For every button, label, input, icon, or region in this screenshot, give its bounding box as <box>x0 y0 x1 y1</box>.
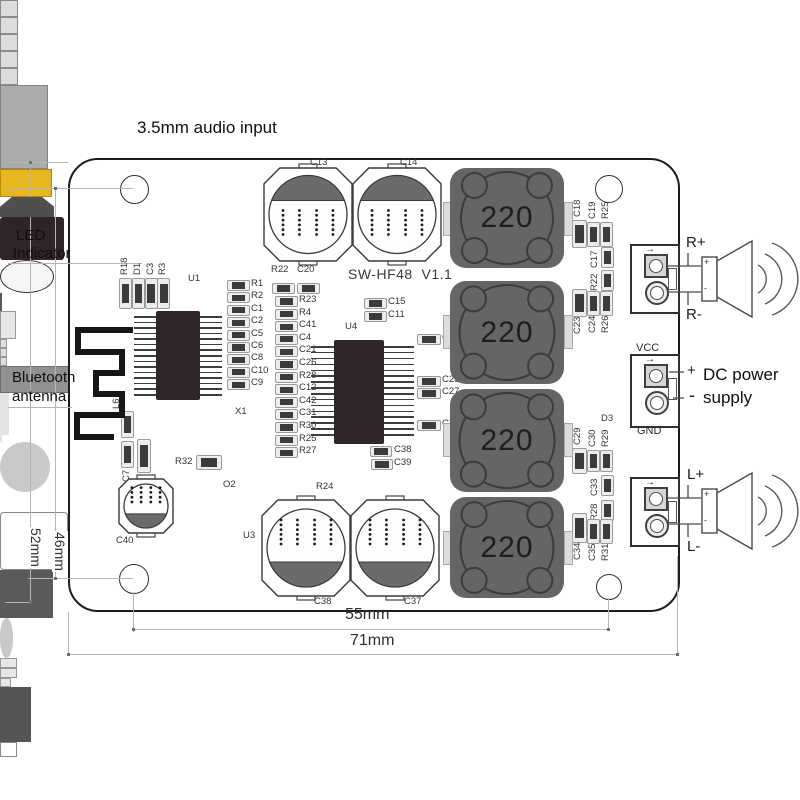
left-speaker-minus-label: L- <box>687 538 700 555</box>
smd-body <box>232 382 246 388</box>
dc-power-label-2: supply <box>703 388 752 408</box>
sound-wave-icon <box>758 497 766 525</box>
silk-label: C1 <box>251 304 263 314</box>
dim-tick <box>67 653 70 656</box>
led-smd-label: C3 <box>146 263 156 275</box>
smd-body <box>280 437 294 443</box>
audio-input-label: 3.5mm audio input <box>137 118 277 138</box>
transistor-lead <box>0 339 7 348</box>
silk-label: C9 <box>251 378 263 388</box>
ic-pin <box>134 355 156 357</box>
ic-pin <box>200 366 222 368</box>
silk-label: R22 <box>271 265 288 275</box>
main-ic-ref-label: U4 <box>345 322 357 332</box>
electrolytic-capacitor <box>262 495 350 601</box>
main-ic-body <box>334 340 384 444</box>
ic-pin <box>134 344 156 346</box>
ic-pin <box>134 372 156 374</box>
ic-pin <box>384 393 414 395</box>
ic-pin <box>311 358 334 360</box>
smd-component <box>227 330 250 341</box>
smd-body <box>603 227 610 243</box>
smd-body <box>590 296 597 312</box>
ext-line-board-bottom <box>5 602 31 603</box>
ic-pin <box>200 322 222 324</box>
inductor-value: 220 <box>450 281 564 384</box>
regulator-pin <box>0 658 17 668</box>
smd-body <box>232 344 246 350</box>
smd-component <box>601 500 614 521</box>
smd-component <box>275 334 298 345</box>
ic-pin <box>311 416 334 418</box>
inductor: 220 <box>450 389 564 492</box>
silk-label: C38 <box>394 445 411 455</box>
led-indicator-label-2: Indicator <box>13 245 71 262</box>
smd-component <box>600 450 613 472</box>
diode-body <box>0 687 31 742</box>
smd-component <box>572 448 587 474</box>
smd-body <box>140 445 148 467</box>
smd-body <box>232 369 246 375</box>
smd-component <box>417 388 441 399</box>
regulator-pin <box>0 678 11 687</box>
audio-jack-body <box>0 85 48 169</box>
led-smd <box>132 278 145 309</box>
c40-label: C40 <box>116 536 133 546</box>
left-speaker-plus-label: L+ <box>687 466 704 483</box>
smd-component <box>572 220 587 248</box>
terminal-opening <box>649 369 663 383</box>
smd-component <box>227 292 250 303</box>
smd-body <box>604 479 611 492</box>
ic-pin <box>134 377 156 379</box>
silk-label: C10 <box>251 366 268 376</box>
inductor-tab <box>564 315 573 349</box>
smd-body <box>604 251 611 264</box>
power-resistor-cap <box>0 393 9 414</box>
smd-component <box>275 346 298 357</box>
smd-component <box>600 519 613 544</box>
smd-body <box>277 285 291 291</box>
inductor: 220 <box>450 281 564 384</box>
c13-label: C13 <box>310 158 327 168</box>
smd-component <box>587 291 600 316</box>
smd-body <box>369 300 383 306</box>
dc-power-label-1: DC power <box>703 365 779 385</box>
mounting-hole-bottom-right <box>596 574 622 600</box>
dim-71mm-label: 71mm <box>350 632 394 650</box>
inductor-value: 220 <box>450 389 564 492</box>
smd-body <box>590 454 597 468</box>
ic-pin <box>134 333 156 335</box>
dc-plus-sign: + <box>687 362 696 379</box>
smd-body <box>280 349 294 355</box>
silk-label: C24 <box>588 316 598 333</box>
inductor-tab <box>564 202 573 236</box>
led-smd-label: R3 <box>158 263 168 275</box>
smd-body <box>422 378 437 384</box>
ic-pin <box>311 405 334 407</box>
ic-pin <box>134 322 156 324</box>
transistor-body <box>0 311 16 339</box>
silk-label: R4 <box>299 308 311 318</box>
smd-component <box>601 247 614 268</box>
wire-entry-arrow-icon: → <box>645 355 655 365</box>
dim-line-55mm <box>133 629 608 630</box>
smd-component <box>275 447 298 458</box>
smd-body <box>422 390 437 396</box>
bluetooth-label-2: antenna <box>12 388 66 405</box>
silk-label: C5 <box>251 329 263 339</box>
power-resistor-cap <box>0 414 9 435</box>
smd-body <box>232 282 246 288</box>
smd-component <box>275 321 298 332</box>
smd-component <box>275 397 298 408</box>
silk-label: C35 <box>588 544 598 561</box>
smd-component <box>572 289 587 317</box>
smd-component <box>364 311 387 322</box>
toroid-ring-inner <box>0 492 20 512</box>
led-smd-label: D1 <box>133 263 143 275</box>
bluetooth-ic-body <box>156 311 200 400</box>
electrolytic-capacitor <box>264 163 352 266</box>
smd-body <box>374 448 387 454</box>
jack-pad <box>0 0 18 17</box>
terminal-screw-square <box>644 364 668 388</box>
dim-46mm-label: 46mm <box>52 531 68 572</box>
smd-component <box>600 222 613 247</box>
terminal-opening <box>650 396 664 410</box>
silk-label: R31 <box>601 544 611 561</box>
led-smd <box>119 278 132 309</box>
smd-component <box>275 359 298 370</box>
ic-pin <box>200 377 222 379</box>
sound-wave-icon <box>772 243 798 315</box>
ic-pin <box>200 333 222 335</box>
silk-label: C19 <box>588 202 598 219</box>
ic-pin <box>200 388 222 390</box>
smd-component <box>297 283 320 294</box>
ic-pin <box>134 383 156 385</box>
ic-pin <box>384 411 414 413</box>
speaker-polarity-mark: + <box>704 258 709 267</box>
led-indicator-label-1: LED <box>16 227 45 244</box>
electrolytic-capacitor <box>353 163 441 266</box>
inductor-value: 220 <box>450 497 564 598</box>
smd-body <box>280 361 294 367</box>
smd-component <box>227 280 250 291</box>
smd-component <box>227 317 250 328</box>
ext-71mm-right <box>677 556 678 656</box>
smd-component <box>196 455 222 470</box>
smd-component <box>275 372 298 383</box>
antenna-leader-line <box>8 407 72 408</box>
smd-component <box>275 422 298 433</box>
smd-body <box>603 454 610 468</box>
ic-pin <box>384 387 414 389</box>
wire-entry-arrow-icon: → <box>645 245 655 255</box>
smd-body <box>232 307 246 313</box>
diode-pad <box>0 742 17 757</box>
jack-pad <box>0 34 18 51</box>
smd-body <box>375 461 388 467</box>
transistor-lead <box>0 348 7 357</box>
inductor-tab <box>564 531 573 565</box>
ic-pin <box>311 346 334 348</box>
terminal-screw-round <box>645 281 669 305</box>
ext-line-bottom-hole <box>28 578 133 579</box>
silk-label: C18 <box>573 200 583 217</box>
dc-minus-sign: - <box>689 385 695 406</box>
silk-label: C29 <box>573 428 583 445</box>
silk-label: R1 <box>251 279 263 289</box>
r24-label: R24 <box>316 482 333 492</box>
sound-wave-icon <box>765 254 782 304</box>
speaker-polarity-mark: - <box>704 516 707 525</box>
smd-body <box>603 524 610 540</box>
right-speaker-plus-label: R+ <box>686 234 706 251</box>
ext-line-board-top <box>8 162 68 163</box>
ic-pin <box>200 372 222 374</box>
ic-pin <box>311 381 334 383</box>
smd-component <box>121 441 134 468</box>
smd-component <box>227 354 250 365</box>
smd-body <box>422 336 437 342</box>
smd-component <box>272 283 295 294</box>
ic-pin <box>200 349 222 351</box>
ic-pin <box>311 434 334 436</box>
dim-tick <box>29 161 32 164</box>
smd-component <box>417 420 441 431</box>
terminal-opening <box>650 286 664 300</box>
r32-label: R32 <box>175 457 192 467</box>
silk-label: C34 <box>573 543 583 560</box>
smd-body <box>124 446 131 463</box>
speaker-polarity-mark: + <box>704 490 709 499</box>
bluetooth-label-1: Bluetooth <box>12 369 75 386</box>
ic-pin <box>134 316 156 318</box>
smd-component <box>600 291 613 316</box>
inductor-tab <box>564 423 573 457</box>
pcb-product-diagram: 3.5mm audio input LED Indicator Bluetoot… <box>0 0 800 800</box>
ic-pin <box>384 405 414 407</box>
smd-component <box>227 342 250 353</box>
smd-component <box>275 296 298 307</box>
silk-label: C41 <box>299 320 316 330</box>
audio-jack-cap <box>0 197 54 217</box>
crystal-can <box>0 260 54 293</box>
ic-pin <box>200 383 222 385</box>
ic-pin <box>200 338 222 340</box>
l6-label: L6 <box>112 398 122 409</box>
smd-body <box>369 313 383 319</box>
power-resistor-dot <box>0 440 2 442</box>
ic-pin <box>311 393 334 395</box>
smd-body <box>575 294 584 312</box>
ic-pin <box>134 361 156 363</box>
smd-component <box>227 379 250 390</box>
electrolytic-capacitor <box>351 495 439 601</box>
jack-pad <box>0 68 18 85</box>
smd-component <box>417 334 441 345</box>
mounting-hole-bottom-left <box>119 564 149 594</box>
inductor-value: 220 <box>450 168 564 268</box>
smd-component <box>227 367 250 378</box>
smd-body <box>280 311 294 317</box>
terminal-opening <box>649 492 663 506</box>
smd-body <box>124 416 131 433</box>
sound-wave-icon <box>758 265 766 293</box>
toroid-ring-outer <box>0 442 50 492</box>
ext-71mm-left <box>68 612 69 656</box>
dim-tick <box>132 628 135 631</box>
silk-label: C39 <box>394 458 411 468</box>
smd-body <box>201 458 217 467</box>
ic-pin <box>134 338 156 340</box>
ic-pin <box>384 399 414 401</box>
smd-body <box>232 357 246 363</box>
d3-label: D3 <box>601 414 613 424</box>
dim-tick <box>29 601 32 604</box>
smd-component <box>227 305 250 316</box>
speaker-polarity-mark: - <box>704 284 707 293</box>
ext-55mm-left <box>133 592 134 632</box>
regulator-pin <box>0 668 17 678</box>
terminal-notch <box>668 501 677 523</box>
sound-wave-icon <box>772 475 798 547</box>
ic-pin <box>384 434 414 436</box>
ic-pin <box>200 355 222 357</box>
terminal-screw-square <box>644 254 668 278</box>
silk-label: R22 <box>590 274 600 291</box>
right-speaker-minus-label: R- <box>686 306 702 323</box>
speaker-horn-icon <box>717 473 752 549</box>
smd-component <box>364 298 387 309</box>
silk-label: C20 <box>297 265 314 275</box>
ic-pin <box>311 399 334 401</box>
smd-body <box>135 284 142 304</box>
regulator-tab <box>0 618 13 658</box>
ic-pin <box>384 422 414 424</box>
ic-pin <box>384 416 414 418</box>
silk-label: R2 <box>251 291 263 301</box>
led-smd-label: R18 <box>120 258 130 275</box>
ic-pin <box>311 352 334 354</box>
terminal-opening <box>649 259 663 273</box>
smd-body <box>122 284 129 304</box>
smd-body <box>302 285 316 291</box>
smd-body <box>280 412 294 418</box>
smd-body <box>590 524 597 540</box>
terminal-opening <box>650 519 664 533</box>
mounting-hole-top-left <box>120 175 149 204</box>
u3-label: U3 <box>243 531 255 541</box>
dim-tick <box>54 187 57 190</box>
smd-body <box>232 332 246 338</box>
smd-body <box>280 387 294 393</box>
smd-component <box>370 446 392 457</box>
electrolytic-capacitor <box>119 474 173 538</box>
ic-pin <box>200 361 222 363</box>
smd-body <box>590 227 597 243</box>
crystal-ref-label: X1 <box>235 407 247 417</box>
smd-body <box>280 336 294 342</box>
ic-pin <box>134 327 156 329</box>
smd-body <box>280 424 294 430</box>
audio-jack-ring <box>0 169 52 197</box>
jack-pad <box>0 17 18 34</box>
ic-pin <box>384 428 414 430</box>
smd-body <box>147 284 154 304</box>
speaker-horn-icon <box>717 241 752 317</box>
dim-55mm-label: 55mm <box>345 606 389 624</box>
wire-entry-arrow-icon: → <box>645 478 655 488</box>
smd-body <box>575 453 584 469</box>
ic-pin <box>311 364 334 366</box>
silk-label: R27 <box>299 446 316 456</box>
terminal-screw-square <box>644 487 668 511</box>
smd-body <box>604 274 611 287</box>
ext-55mm-right <box>608 598 609 630</box>
smd-body <box>575 225 584 243</box>
ic-pin <box>134 366 156 368</box>
silk-label: C2 <box>251 316 263 326</box>
ic-pin <box>200 316 222 318</box>
silk-label: R25 <box>601 202 611 219</box>
ic-pin <box>384 346 414 348</box>
smd-component <box>275 309 298 320</box>
c14-label: C14 <box>400 158 417 168</box>
smd-body <box>160 284 167 304</box>
terminal-screw-round <box>645 391 669 415</box>
smd-component <box>587 222 600 247</box>
ic-pin <box>384 364 414 366</box>
smd-body <box>603 296 610 312</box>
ic-pin <box>134 349 156 351</box>
ic-pin <box>311 422 334 424</box>
dim-tick <box>607 628 610 631</box>
ic-pin <box>311 375 334 377</box>
ic-pin <box>384 370 414 372</box>
silk-label: R26 <box>601 316 611 333</box>
c38-label: C38 <box>314 597 331 607</box>
smd-component <box>137 439 151 473</box>
ic-pin <box>200 327 222 329</box>
smd-component <box>572 513 587 543</box>
ic-pin <box>200 344 222 346</box>
silk-label: R23 <box>299 295 316 305</box>
smd-component <box>601 475 614 496</box>
led-smd <box>145 278 158 309</box>
smd-body <box>280 399 294 405</box>
mounting-hole-top-right <box>595 175 623 203</box>
terminal-screw-round <box>645 514 669 538</box>
smd-body <box>232 320 246 326</box>
smd-body <box>422 422 437 428</box>
smd-component <box>275 384 298 395</box>
smd-body <box>575 518 584 537</box>
smd-component <box>275 435 298 446</box>
smd-body <box>604 504 611 517</box>
ic-pin <box>311 387 334 389</box>
ic-pin <box>311 370 334 372</box>
smd-component <box>587 450 600 472</box>
silk-label: C11 <box>388 310 405 320</box>
smd-body <box>232 295 246 301</box>
smd-component <box>121 411 134 438</box>
smd-component <box>601 270 614 291</box>
ic-pin <box>200 394 222 396</box>
